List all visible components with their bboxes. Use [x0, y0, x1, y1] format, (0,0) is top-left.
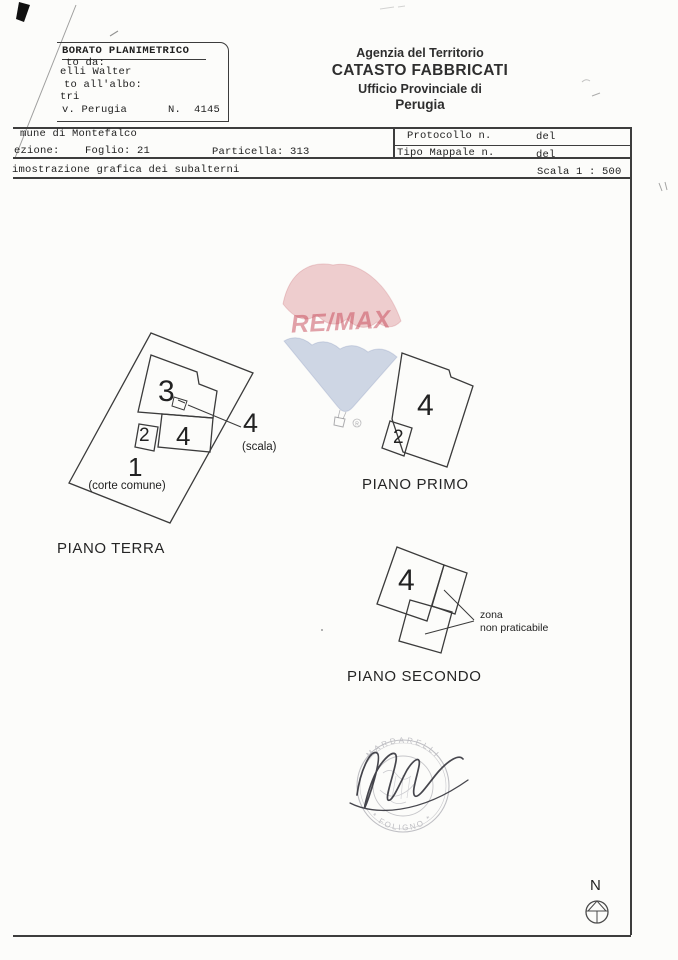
- terra-stair-leader-line: [188, 405, 241, 427]
- document-border-right: [630, 127, 632, 935]
- foglio-field: Foglio: 21: [85, 145, 150, 157]
- terra-stair-number: 4: [243, 408, 258, 439]
- agency-line3: Ufficio Provinciale di: [325, 82, 515, 96]
- scan-smudge: [380, 6, 405, 9]
- tipo-mappale-value: del: [536, 149, 556, 161]
- balloon-basket: [334, 417, 345, 427]
- table-line-vertical: [393, 127, 395, 158]
- balloon-canopy-bottom: [284, 338, 397, 412]
- piano-terra-title: PIANO TERRA: [57, 540, 165, 557]
- agency-line4: Perugia: [325, 97, 515, 112]
- margin-marks: [659, 182, 667, 191]
- primo-room4-label: 4: [417, 389, 434, 423]
- zona-leader-lines: [425, 590, 474, 634]
- remax-wordmark: RE/MAX: [290, 305, 392, 338]
- surveyor-stamp: MARDARELLI * FOLIGNO *: [357, 736, 449, 833]
- piano-primo-title: PIANO PRIMO: [362, 476, 469, 493]
- cadastral-document-page: RE/MAX R: [0, 0, 678, 960]
- elaborato-row-albo: to all'albo:: [64, 79, 142, 91]
- terra-room3-label: 3: [158, 375, 175, 409]
- zona-note-line1: zona: [480, 609, 503, 621]
- scale-value: Scala 1 : 500: [537, 166, 622, 178]
- sezione-field: ezione:: [14, 145, 60, 157]
- elaborato-number: N. 4145: [168, 104, 220, 116]
- elaborato-row-geometri: tri: [60, 91, 80, 103]
- terra-room2-label: 2: [139, 425, 150, 447]
- balloon-canopy-top: [283, 264, 401, 327]
- registered-trademark-icon: [353, 419, 361, 427]
- protocollo-value: del: [536, 131, 556, 143]
- terra-courtyard-outline: [69, 333, 253, 523]
- particella-field: Particella: 313: [212, 146, 310, 158]
- elaborato-row-name: elli Walter: [60, 66, 132, 78]
- stamp-emblem-lines: [380, 770, 414, 803]
- remax-balloon-watermark: RE/MAX R: [283, 264, 401, 428]
- secondo-room4-label: 4: [398, 564, 415, 598]
- elaborato-row-provincia: v. Perugia: [62, 104, 127, 116]
- agency-line2: CATASTO FABBRICATI: [325, 62, 515, 79]
- scan-corner-mark: [16, 2, 30, 22]
- caption-subalterni: imostrazione grafica dei subalterni: [12, 164, 240, 176]
- terra-room3-outline: [138, 355, 217, 418]
- terra-court-label: 1: [128, 452, 142, 483]
- stamp-emblem-hatch: [392, 775, 410, 799]
- zona-note-line2: non praticabile: [480, 622, 548, 634]
- floor-plan-piano-terra: [69, 333, 253, 523]
- primo-room2-label: 2: [393, 427, 404, 449]
- scan-squiggle: [582, 80, 590, 82]
- comune-field: mune di Montefalco: [20, 128, 137, 140]
- protocollo-label: Protocollo n.: [407, 130, 492, 142]
- north-compass-icon: [586, 901, 608, 923]
- north-label: N: [590, 877, 601, 894]
- floor-plan-piano-secondo: [377, 547, 474, 653]
- svg-text:* FOLIGNO *: * FOLIGNO *: [369, 811, 434, 832]
- scan-tick-mark: [110, 31, 118, 36]
- terra-stair-note: (scala): [242, 441, 277, 453]
- scan-dash-mark: [592, 93, 600, 96]
- tipo-mappale-label: Tipo Mappale n.: [397, 147, 495, 159]
- secondo-upper-zone-outline: [432, 565, 467, 614]
- scan-speck: [321, 629, 323, 631]
- registered-trademark-letter: R: [355, 422, 359, 428]
- stamp-text-top: MARDARELLI: [365, 736, 442, 760]
- secondo-lower-zone-outline: [399, 600, 452, 653]
- terra-room4-label: 4: [176, 421, 190, 452]
- terra-court-note: (corte comune): [66, 480, 188, 492]
- agency-header: Agenzia del Territorio CATASTO FABBRICAT…: [325, 46, 515, 112]
- svg-text:MARDARELLI: MARDARELLI: [365, 736, 442, 760]
- agency-line1: Agenzia del Territorio: [325, 46, 515, 60]
- stamp-text-bottom: * FOLIGNO *: [369, 811, 434, 832]
- balloon-basket-ropes: [338, 410, 346, 419]
- document-border-bottom: [13, 935, 631, 937]
- piano-secondo-title: PIANO SECONDO: [347, 668, 482, 685]
- signature-ink: [350, 753, 468, 811]
